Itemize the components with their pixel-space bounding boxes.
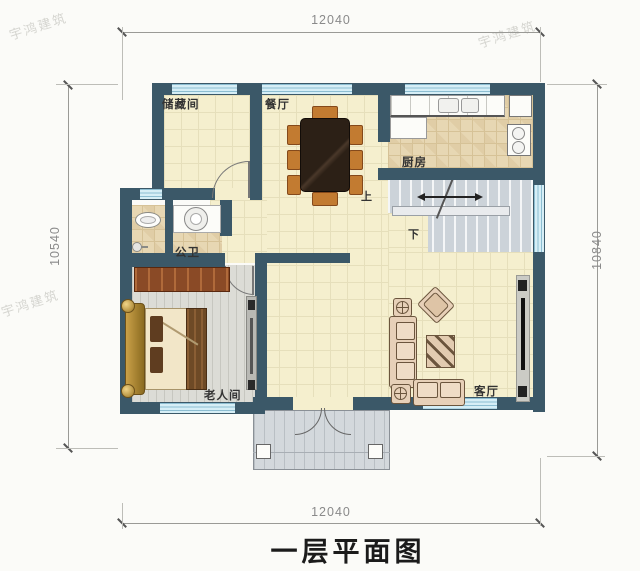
tv-speaker	[518, 386, 527, 397]
sofa-cushion	[440, 382, 461, 398]
left-dimension-value: 10540	[48, 215, 62, 277]
bedroom-door-leaf	[252, 266, 254, 295]
floor-plan-canvas: 宇鸿建筑 宇鸿建筑 宇鸿建筑 宇鸿建筑 上 下	[0, 0, 640, 571]
bed-pillow	[150, 316, 163, 342]
extension-line	[540, 458, 541, 526]
elder-bedroom-label: 老人间	[204, 387, 242, 403]
extension-line	[540, 27, 541, 82]
refrigerator	[509, 95, 532, 117]
storage-dining-divider-wall	[250, 83, 262, 200]
stair-window	[534, 185, 544, 252]
arrow-head-left	[417, 193, 425, 201]
entry-porch	[253, 410, 390, 470]
bathroom-label: 公卫	[175, 244, 200, 260]
bed-post-knob	[121, 384, 135, 398]
top-dimension-value: 12040	[122, 13, 540, 27]
extension-line	[56, 448, 118, 449]
stair-handrail	[392, 206, 510, 216]
kitchen-window	[405, 84, 490, 94]
arrow-head-right	[475, 193, 483, 201]
right-dimension-value: 10840	[590, 219, 604, 281]
plan-title: 一层平面图	[148, 530, 548, 569]
dining-chair	[287, 150, 301, 170]
porch-column	[256, 444, 271, 459]
dining-chair	[287, 175, 301, 195]
top-dimension-line	[122, 32, 540, 33]
sofa-cushion	[396, 342, 415, 360]
dining-room-label: 餐厅	[265, 96, 290, 112]
watermark-text: 宇鸿建筑	[7, 7, 70, 44]
bedroom-window	[160, 403, 235, 413]
extension-line	[122, 503, 123, 529]
storage-window	[172, 84, 237, 94]
sink-basin-right	[461, 98, 479, 113]
bedroom-tv-speaker	[248, 300, 255, 310]
bedroom-tv-screen	[250, 318, 253, 374]
left-dimension-line	[68, 85, 69, 448]
tv-screen	[521, 298, 525, 370]
kitchen-cabinet	[390, 117, 427, 139]
coffee-table	[426, 335, 455, 368]
bathroom-window	[140, 189, 162, 199]
dining-chair	[312, 192, 338, 206]
storage-door-leaf	[248, 161, 250, 198]
living-room-label: 客厅	[474, 383, 499, 399]
watermark-text: 宇鸿建筑	[0, 284, 61, 321]
extension-line	[547, 456, 605, 457]
kitchen-west-wall	[378, 95, 390, 142]
burner	[512, 141, 525, 154]
extension-line	[547, 84, 607, 85]
bed-pillow	[150, 347, 163, 373]
bed-post-knob	[121, 299, 135, 313]
dining-window	[262, 84, 352, 94]
burner	[512, 127, 525, 140]
toilet-bowl	[140, 216, 156, 224]
sofa-cushion	[396, 362, 415, 380]
living-north-wall	[255, 253, 350, 263]
bedroom-tv-speaker	[248, 380, 255, 390]
bed-blanket	[186, 308, 207, 390]
bottom-dimension-line	[122, 523, 540, 524]
dining-chair	[349, 150, 363, 170]
sofa-cushion	[396, 322, 415, 340]
stair-down-label: 下	[408, 226, 419, 242]
extension-line	[122, 27, 123, 100]
porch-column	[368, 444, 383, 459]
bedroom-north-wall	[120, 253, 225, 267]
dining-chair	[349, 125, 363, 145]
shower-arm	[141, 246, 148, 248]
lamp-cross	[400, 387, 401, 400]
sofa-cushion	[417, 382, 438, 398]
tv-speaker	[518, 280, 527, 291]
kitchen-label: 厨房	[402, 154, 427, 170]
dining-table	[300, 118, 350, 192]
wardrobe	[134, 267, 230, 292]
stair-direction-arrow	[424, 196, 476, 198]
bed-headboard	[125, 303, 145, 395]
extension-line	[56, 84, 118, 85]
dining-chair	[349, 175, 363, 195]
wash-basin-drain	[190, 213, 202, 225]
bathroom-divider-wall	[165, 200, 173, 257]
lamp-cross	[402, 301, 403, 314]
dining-chair	[287, 125, 301, 145]
bottom-dimension-value: 12040	[122, 505, 540, 519]
bathroom-east-wall	[220, 200, 232, 236]
storage-room-label: 储藏间	[162, 96, 200, 112]
sink-basin-left	[438, 98, 459, 113]
